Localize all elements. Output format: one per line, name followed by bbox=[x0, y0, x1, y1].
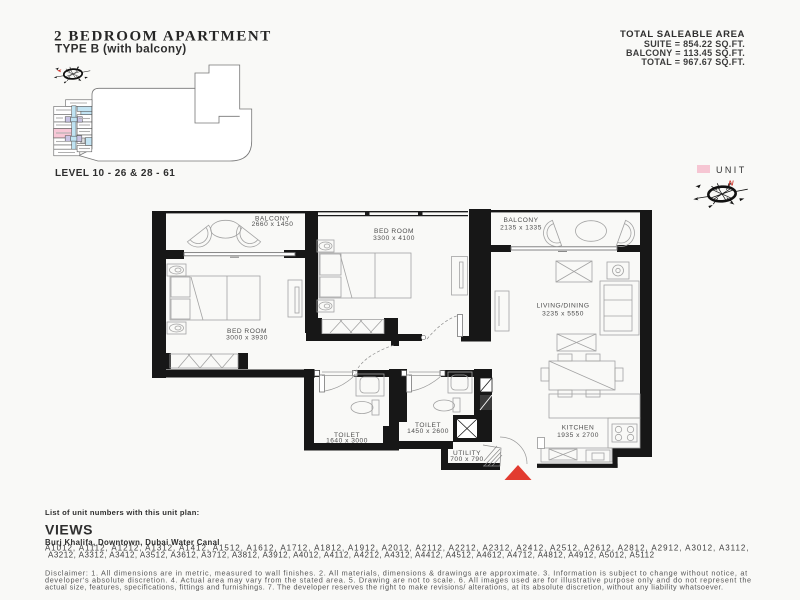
svg-text:List of unit numbers with this: List of unit numbers with this unit plan… bbox=[45, 508, 199, 517]
svg-text:BED ROOM: BED ROOM bbox=[374, 228, 414, 235]
svg-text:1450 x 2600: 1450 x 2600 bbox=[407, 428, 449, 435]
svg-text:A3212, A3312, A3412, A3512, A3: A3212, A3312, A3412, A3512, A3612, A3712… bbox=[48, 551, 655, 560]
svg-text:3300 x 4100: 3300 x 4100 bbox=[373, 235, 415, 242]
svg-text:UNIT: UNIT bbox=[716, 165, 747, 175]
svg-text:2660 x 1450: 2660 x 1450 bbox=[252, 221, 294, 228]
svg-text:2135 x 1335: 2135 x 1335 bbox=[500, 224, 542, 231]
svg-text:LEVEL 10 - 26 & 28 - 61: LEVEL 10 - 26 & 28 - 61 bbox=[55, 168, 175, 179]
svg-text:VIEWS: VIEWS bbox=[45, 522, 93, 538]
svg-text:TYPE B (with balcony): TYPE B (with balcony) bbox=[55, 42, 187, 56]
svg-text:700 x 790: 700 x 790 bbox=[450, 456, 483, 463]
svg-text:actual size, features, specifi: actual size, features, specifications, f… bbox=[45, 583, 724, 592]
svg-text:TOTAL = 967.67 SQ.FT.: TOTAL = 967.67 SQ.FT. bbox=[641, 57, 745, 67]
svg-text:1640 x 3000: 1640 x 3000 bbox=[326, 437, 368, 444]
svg-text:3235 x 5550: 3235 x 5550 bbox=[542, 311, 584, 318]
svg-text:LIVING/DINING: LIVING/DINING bbox=[536, 303, 589, 310]
svg-text:BALCONY: BALCONY bbox=[503, 217, 538, 224]
svg-text:KITCHEN: KITCHEN bbox=[562, 425, 594, 432]
svg-text:1935 x 2700: 1935 x 2700 bbox=[557, 432, 599, 439]
svg-text:3000 x 3930: 3000 x 3930 bbox=[226, 335, 268, 342]
